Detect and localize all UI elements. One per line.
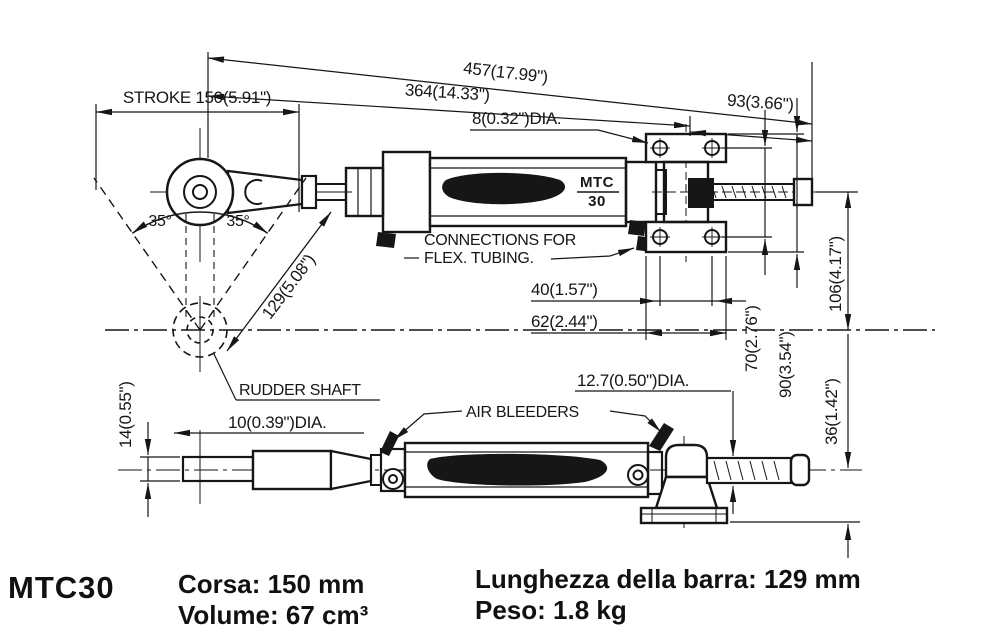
- tang-flat: [183, 457, 253, 481]
- pedestal-flange: [648, 452, 662, 494]
- tie-rod-nut-inner: [688, 178, 714, 208]
- base-height-label: 36(1.42"): [822, 378, 841, 445]
- spec-column-left: Corsa: 150 mm Volume: 67 cm³: [178, 569, 368, 631]
- left-plug-fitting: [383, 469, 403, 489]
- model-badge-top: MTC: [580, 174, 614, 191]
- flex-tubing-fitting-upper: [628, 220, 646, 236]
- hole-spacing-h-label: 40(1.57"): [531, 280, 598, 299]
- spec-corsa: Corsa: 150 mm: [178, 569, 368, 600]
- stroke-label: STROKE 150(5.91"): [123, 88, 271, 107]
- left-port-fitting: [376, 232, 396, 248]
- bracket-width-label: 62(2.44"): [531, 312, 598, 331]
- mount-hole-dia-label: 8(0.32")DIA.: [472, 109, 561, 128]
- tiller-radius-label: 129(5.08"): [258, 251, 319, 323]
- rudder-shaft-leader: [214, 354, 236, 400]
- cylinder-dimensional-drawing: STROKE 150(5.91") 457(17.99") 364(14.33"…: [0, 0, 1000, 641]
- tang-thickness-label: 14(0.55"): [116, 381, 135, 448]
- rudder-shaft-label: RUDDER SHAFT: [239, 382, 361, 399]
- pedestal-dome: [666, 445, 707, 477]
- cylinder-left-head: [383, 152, 430, 232]
- cylinder-right-gland: [626, 162, 656, 222]
- hole-spacing-v-label: 70(2.76"): [742, 305, 761, 372]
- mount-hole-leader: [598, 130, 648, 143]
- air-bleeder-left: [380, 431, 399, 456]
- air-bleeder-leader-right: [610, 411, 661, 432]
- overall-length-label: 457(17.99"): [462, 58, 549, 86]
- angle-left-label: 35°: [148, 213, 171, 230]
- connections-leader: [551, 248, 634, 259]
- tang-block: [253, 451, 331, 489]
- rod-dia-label: 12.7(0.50")DIA.: [577, 371, 689, 390]
- connections-label-2: FLEX. TUBING.: [424, 250, 534, 267]
- rod-end-eye: [167, 159, 233, 225]
- eye-to-bracket-label: 364(14.33"): [404, 80, 490, 104]
- air-bleeder-leader-left: [394, 411, 462, 440]
- pedestal-base: [641, 508, 727, 523]
- connections-label-1: CONNECTIONS FOR: [424, 232, 576, 249]
- tie-rod-cap: [791, 455, 809, 485]
- model-badge-bottom: 30: [588, 193, 606, 210]
- model-name: MTC30: [8, 570, 115, 606]
- rod-cone: [331, 451, 371, 489]
- centerline-offset-label: 106(4.17"): [826, 236, 845, 312]
- spec-peso: Peso: 1.8 kg: [475, 595, 861, 626]
- rod-end-hole-dia-label: 10(0.39")DIA.: [228, 413, 327, 432]
- dimension-labels: STROKE 150(5.91") 457(17.99") 364(14.33"…: [116, 58, 845, 448]
- side-view: [183, 423, 809, 523]
- rod-end-neck: [228, 171, 302, 213]
- bracket-to-rod-end-label: 93(3.66"): [726, 91, 794, 115]
- spec-column-right: Lunghezza della barra: 129 mm Peso: 1.8 …: [475, 564, 861, 626]
- label-band-side: [427, 454, 607, 486]
- technical-drawing-page: STROKE 150(5.91") 457(17.99") 364(14.33"…: [0, 0, 1000, 641]
- right-plug-fitting: [628, 465, 648, 485]
- spec-volume: Volume: 67 cm³: [178, 600, 368, 631]
- spec-lunghezza: Lunghezza della barra: 129 mm: [475, 564, 861, 595]
- bracket-height-label: 90(3.54"): [776, 331, 795, 398]
- air-bleeders-label: AIR BLEEDERS: [466, 404, 579, 421]
- angle-right-label: 35°: [226, 213, 249, 230]
